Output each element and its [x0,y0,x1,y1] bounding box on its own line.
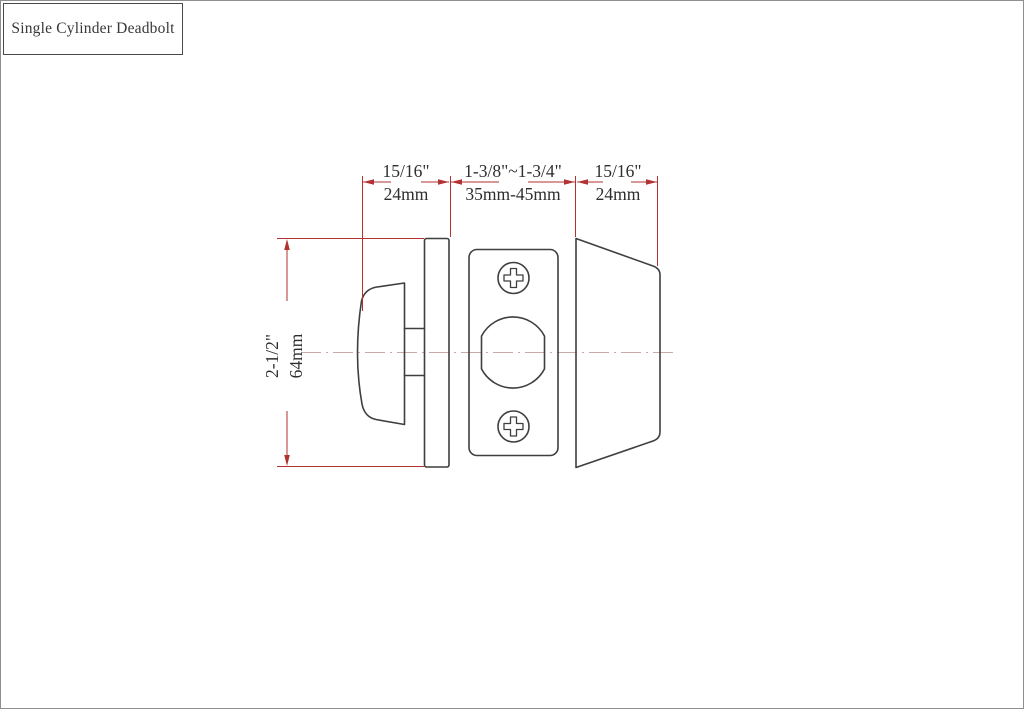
dim-middle-inch: 1-3/8"~1-3/4" [464,161,562,181]
dim-left-mm: 24mm [384,184,429,204]
dimension-right: 15/16" 24mm [577,161,658,266]
dim-height-mm: 64mm [286,333,306,378]
latch-faceplate [469,250,558,456]
screw-bottom-icon [498,411,529,442]
thumbturn-knob [358,283,425,425]
screw-top-icon [498,263,529,294]
deadbolt-technical-drawing: 15/16" 24mm 1-3/8"~1-3/4" 35mm-45mm 15/1… [1,1,1024,709]
dim-left-inch: 15/16" [382,161,429,181]
drawing-page: Single Cylinder Deadbolt [0,0,1024,709]
dim-right-inch: 15/16" [594,161,641,181]
dim-middle-mm: 35mm-45mm [465,184,561,204]
dimension-left: 15/16" 24mm [363,161,451,311]
dim-right-mm: 24mm [596,184,641,204]
dim-height-inch: 2-1/2" [262,334,282,378]
dimension-middle: 1-3/8"~1-3/4" 35mm-45mm [451,161,576,237]
